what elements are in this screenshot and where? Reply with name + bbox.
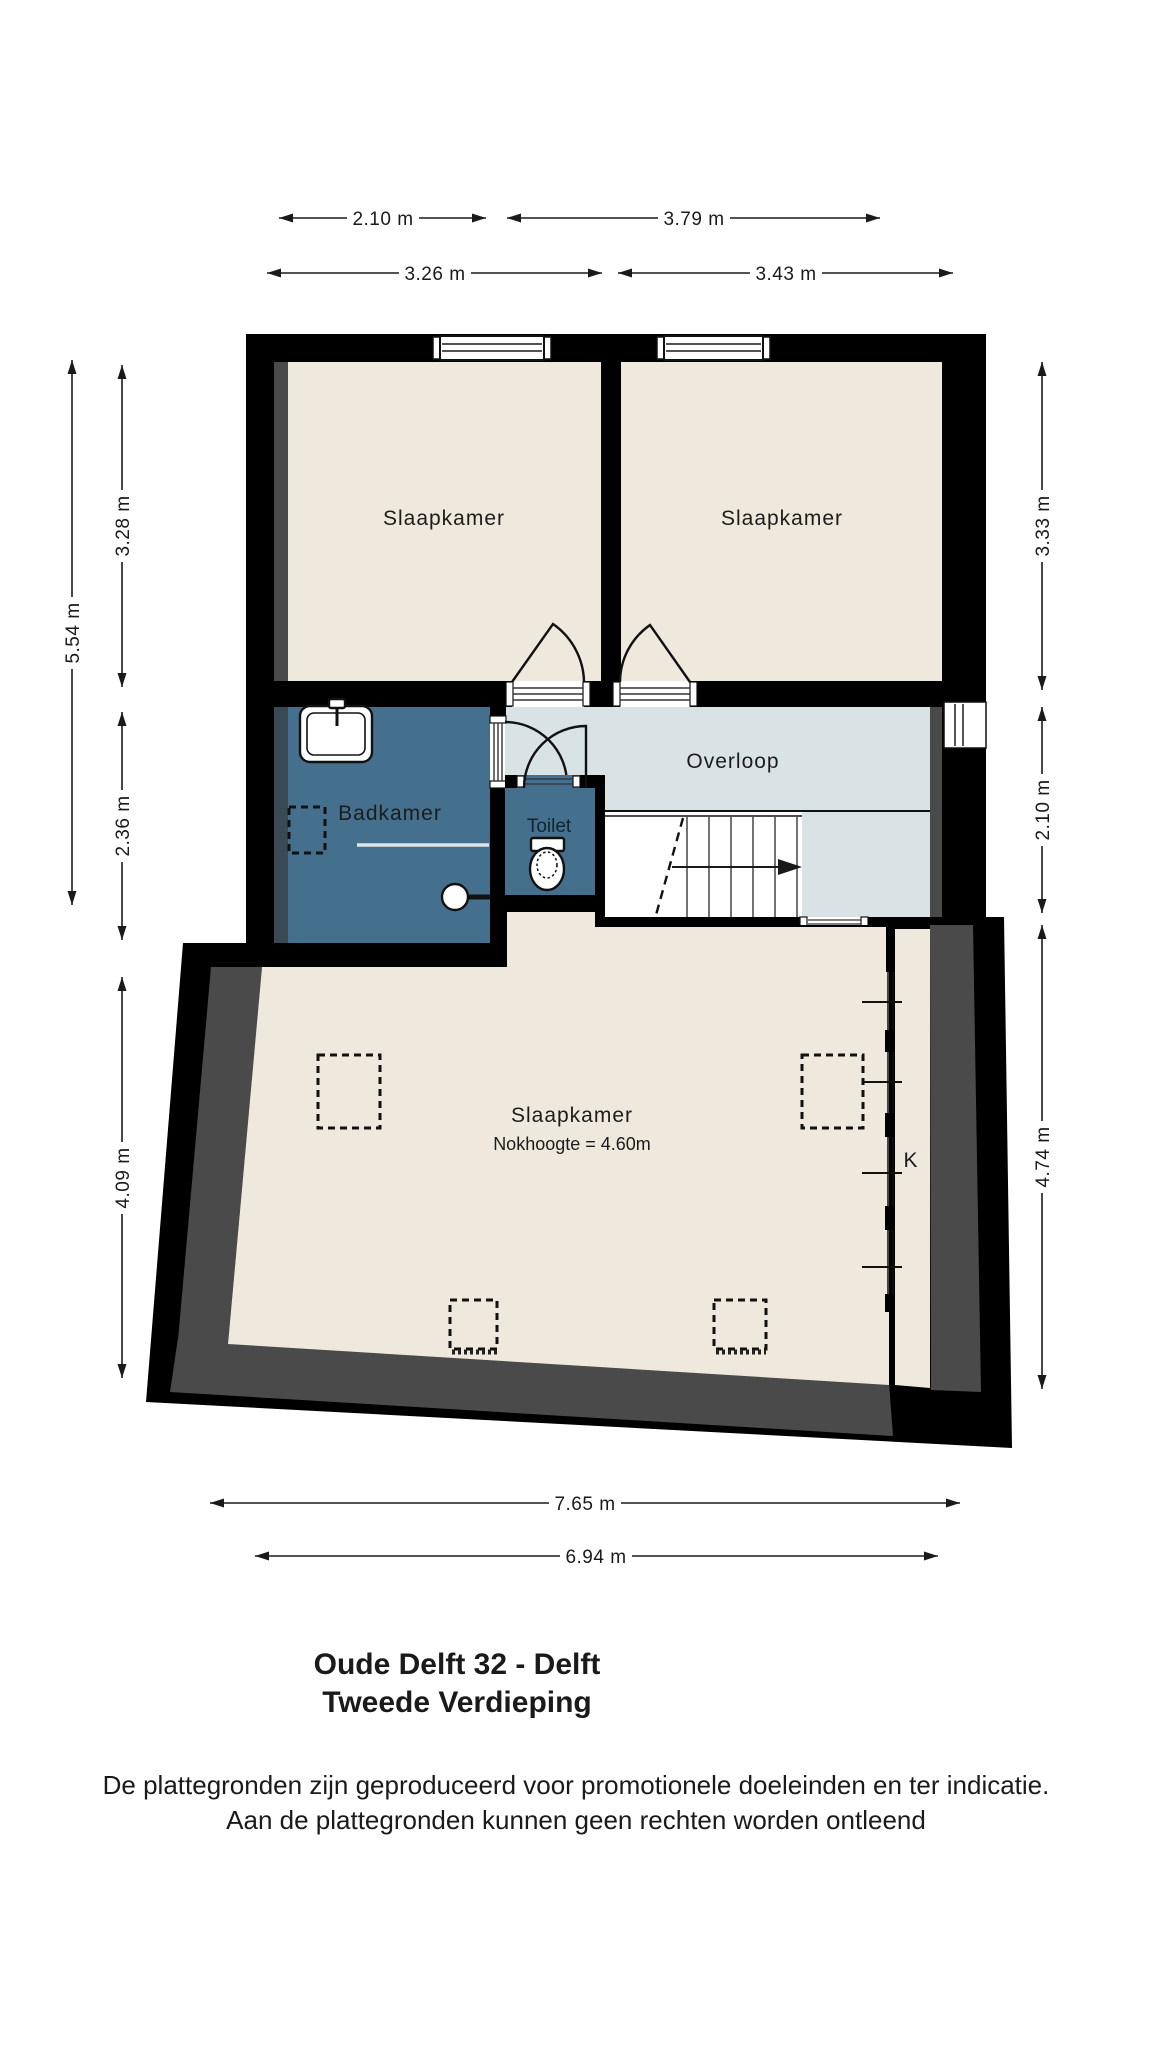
bathroom-wall-shadow [274, 707, 288, 943]
window-right-landing [944, 702, 986, 748]
dim-top-210: 2.10 m [279, 209, 486, 230]
svg-text:3.33 m: 3.33 m [1033, 495, 1054, 556]
bedroom-divider-wall [601, 362, 621, 681]
svg-text:5.54 m: 5.54 m [63, 602, 84, 663]
lower-right-shadow [930, 925, 981, 1392]
label-bedroom-top-right: Slaapkamer [721, 507, 843, 530]
plan-title-floor: Tweede Verdieping [0, 1684, 914, 1722]
svg-text:2.10 m: 2.10 m [1033, 779, 1054, 840]
svg-text:3.79 m: 3.79 m [663, 209, 724, 230]
dim-left-554: 5.54 m [63, 360, 84, 905]
dim-top-343: 3.43 m [618, 264, 953, 285]
dim-right-474: 4.74 m [1033, 925, 1054, 1389]
dim-left-409: 4.09 m [113, 977, 134, 1378]
dim-right-333: 3.33 m [1033, 362, 1054, 690]
dim-right-210: 2.10 m [1033, 707, 1054, 913]
label-bedroom-top-left: Slaapkamer [383, 507, 505, 530]
plan-disclaimer-line2: Aan de plattegronden kunnen geen rechten… [0, 1803, 1152, 1838]
toilet-fixture [530, 838, 564, 890]
svg-text:7.65 m: 7.65 m [554, 1494, 615, 1515]
label-toilet: Toilet [527, 816, 572, 837]
dim-bottom-765: 7.65 m [210, 1494, 960, 1515]
label-bedroom-main-sub: Nokhoogte = 4.60m [493, 1134, 651, 1154]
bedroom-bottom-wall [274, 681, 942, 707]
dim-top-379: 3.79 m [507, 209, 880, 230]
svg-text:3.43 m: 3.43 m [755, 264, 816, 285]
sink [300, 699, 372, 762]
plan-title-block: Oude Delft 32 - Delft Tweede Verdieping [0, 1646, 914, 1722]
dim-left-328: 3.28 m [113, 365, 134, 687]
dim-left-236: 2.36 m [113, 712, 134, 940]
label-bedroom-main: Slaapkamer [511, 1104, 633, 1127]
svg-text:4.09 m: 4.09 m [113, 1147, 134, 1208]
svg-text:4.74 m: 4.74 m [1033, 1126, 1054, 1187]
label-bathroom: Badkamer [338, 802, 442, 825]
svg-text:3.28 m: 3.28 m [113, 495, 134, 556]
svg-text:6.94 m: 6.94 m [565, 1547, 626, 1568]
plan-disclaimer: De plattegronden zijn geproduceerd voor … [0, 1768, 1152, 1838]
bathroom-right-wall [490, 707, 506, 943]
window-top-right [657, 336, 770, 360]
dim-bottom-694: 6.94 m [255, 1547, 938, 1568]
label-landing: Overloop [686, 750, 779, 773]
floorplan-drawing: Slaapkamer Slaapkamer Overloop Badkamer … [0, 0, 1152, 2048]
svg-text:2.36 m: 2.36 m [113, 795, 134, 856]
dim-top-326: 3.26 m [267, 264, 602, 285]
plan-title-address: Oude Delft 32 - Delft [0, 1646, 914, 1684]
label-closet: K [903, 1149, 918, 1172]
floorplan-page: Slaapkamer Slaapkamer Overloop Badkamer … [0, 0, 1152, 2048]
svg-text:2.10 m: 2.10 m [352, 209, 413, 230]
svg-text:3.26 m: 3.26 m [404, 264, 465, 285]
window-top-left [433, 336, 551, 360]
plan-disclaimer-line1: De plattegronden zijn geproduceerd voor … [0, 1768, 1152, 1803]
